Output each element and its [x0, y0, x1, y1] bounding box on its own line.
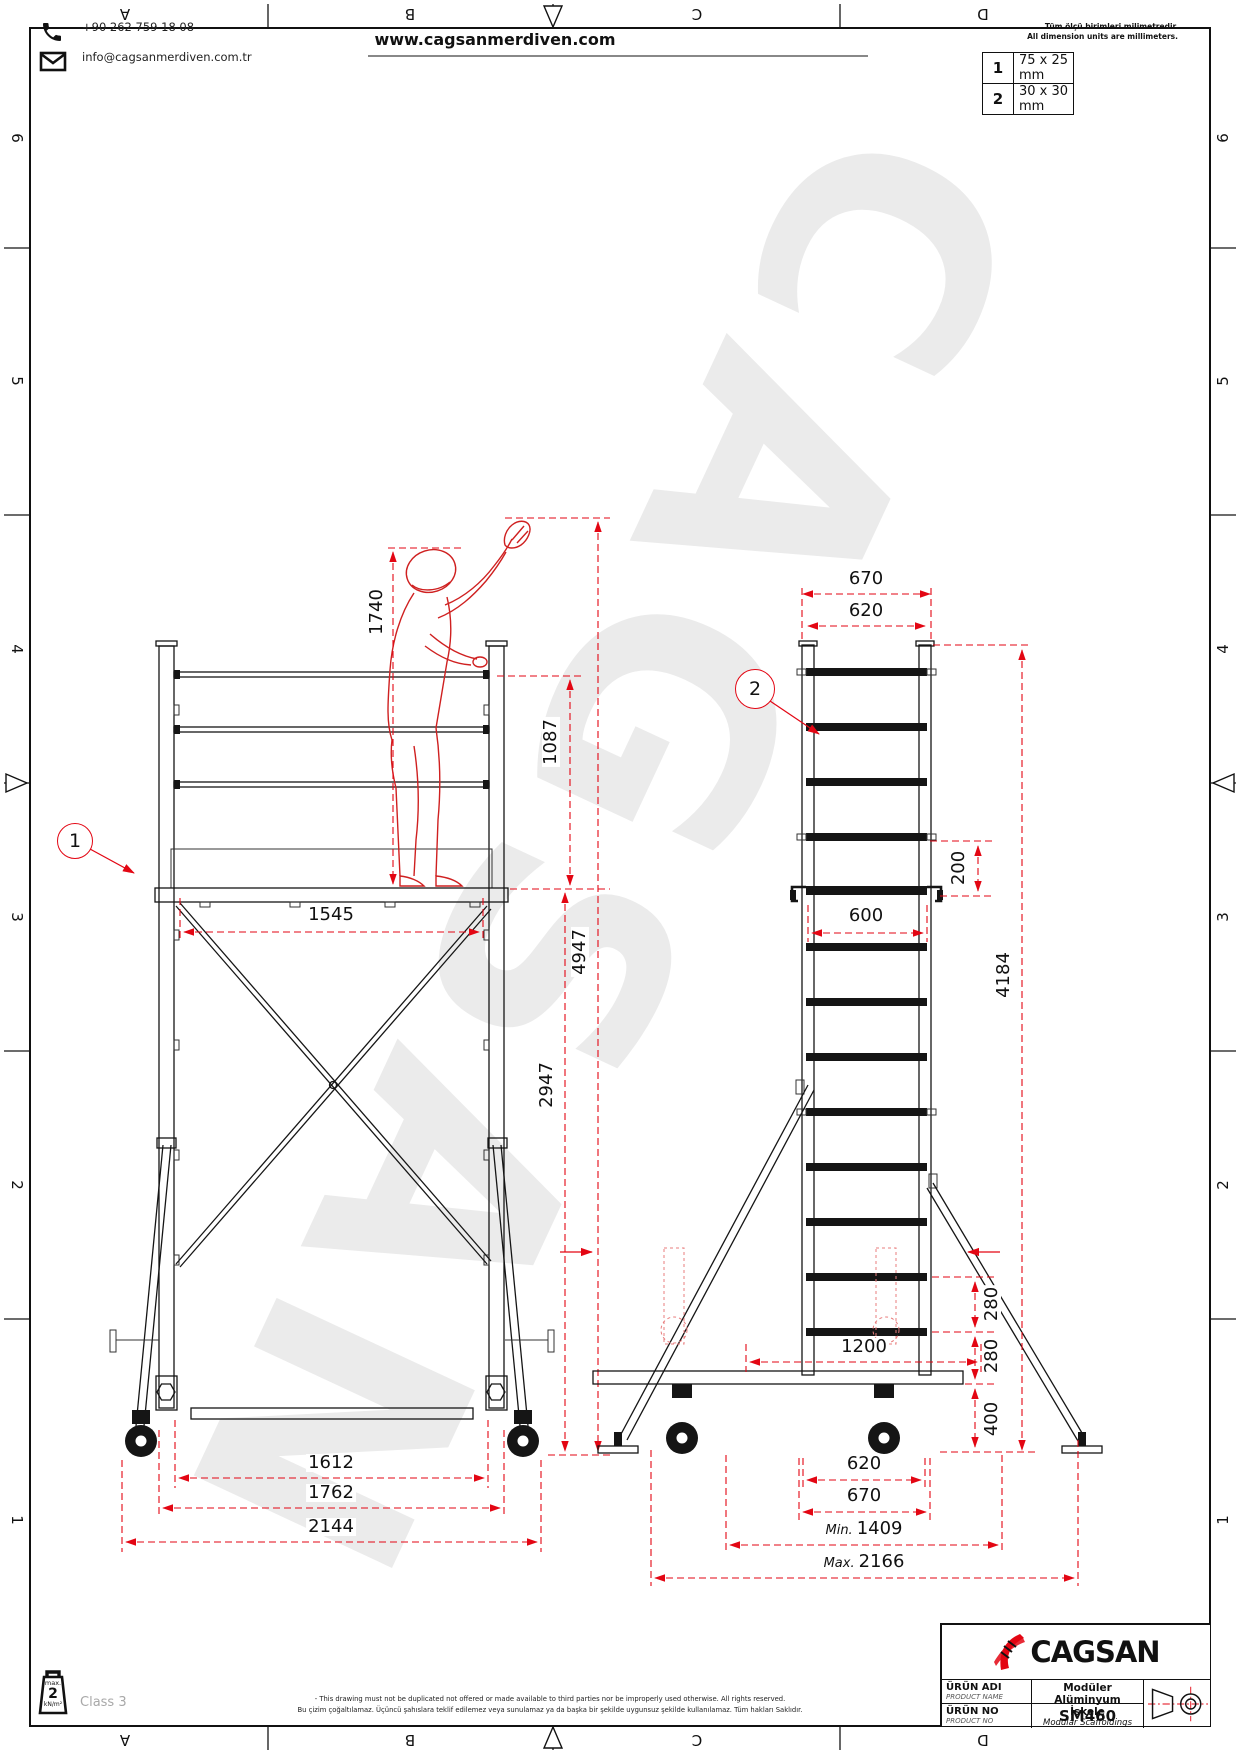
dim-guardrail-height: 1087 [542, 717, 560, 767]
dim-frame-width-inner: 620 [847, 602, 885, 620]
disclaimer: - This drawing must not be duplicated no… [240, 1694, 860, 1716]
frame-col-bottom-a: A [120, 1731, 130, 1749]
frame-row-right-2: 2 [1214, 1180, 1232, 1190]
load-class-row: max. 2 kN/m² Class 3 [36, 1668, 127, 1716]
email-row: info@cagsanmerdiven.com.tr [40, 50, 252, 64]
phone-number: +90 262 759 18 08 [82, 20, 194, 34]
dim-bottom-width-outer: 670 [845, 1487, 883, 1505]
frame-row-left-1: 1 [8, 1515, 26, 1525]
dim-rung-to-platform: 200 [950, 849, 968, 887]
product-no-cell: SM460 [1032, 1704, 1144, 1728]
max-load-value: 2 [36, 1687, 70, 1701]
dim-total-height: 4947 [571, 927, 589, 977]
projection-symbol-cell [1144, 1680, 1212, 1728]
frame-col-bottom-c: C [692, 1731, 702, 1749]
product-name-label-cell: ÜRÜN ADI PRODUCT NAME [942, 1680, 1032, 1704]
table-row: 1 75 x 25 mm [983, 53, 1074, 84]
dim-frame-width-outer: 670 [847, 570, 885, 588]
drawing-sheet: CAGSAN [0, 0, 1240, 1754]
product-number: SM460 [1036, 1706, 1139, 1726]
dim-rung-pitch-lower: 280 [983, 1337, 1001, 1375]
units-note-tr: Tüm ölçü birimleri milimetredir. [1027, 22, 1178, 32]
brand-name: CAGSAN [1030, 1635, 1159, 1669]
product-name-cell: Modüler Alüminyum İskele Modular Scaffol… [1032, 1680, 1144, 1704]
dim-clear-width: 600 [847, 907, 885, 925]
disclaimer-tr: Bu çizim çoğaltılamaz. Üçüncü şahıslara … [240, 1705, 860, 1716]
frame-col-top-b: B [405, 5, 415, 23]
brand-logo: CAGSAN [942, 1625, 1210, 1680]
profile-2-id: 2 [983, 84, 1014, 115]
dim-base-width: 1200 [839, 1338, 889, 1356]
callout-balloon-1: 1 [57, 823, 93, 859]
dim-platform-width: 1545 [306, 906, 356, 924]
phone-row: +90 262 759 18 08 [40, 20, 194, 34]
frame-row-right-4: 4 [1214, 644, 1232, 654]
profile-size-table: 1 75 x 25 mm 2 30 x 30 mm [982, 52, 1074, 115]
frame-row-left-3: 3 [8, 912, 26, 922]
projection-symbol-icon [1148, 1682, 1208, 1726]
dim-min-prefix: Min. [825, 1523, 852, 1538]
frame-col-bottom-d: D [977, 1731, 989, 1749]
frame-col-bottom-b: B [405, 1731, 415, 1749]
brand-ribbon-icon [992, 1632, 1026, 1672]
frame-row-right-5: 5 [1214, 376, 1232, 386]
dim-base-width-inner: 1612 [306, 1454, 356, 1472]
frame-row-left-2: 2 [8, 1180, 26, 1190]
callout-balloon-2: 2 [735, 669, 775, 709]
dim-base-width-outer: 2144 [306, 1518, 356, 1536]
dim-max-prefix: Max. [824, 1556, 855, 1571]
frame-col-top-c: C [692, 5, 702, 23]
product-no-label-cell: ÜRÜN NO PRODUCT NO [942, 1704, 1032, 1728]
frame-col-top-d: D [977, 5, 989, 23]
frame-row-left-6: 6 [8, 133, 26, 143]
dim-max-spread: Max.2166 [822, 1553, 907, 1571]
max-load-weight-icon: max. 2 kN/m² [36, 1668, 70, 1716]
dim-frame-height: 4184 [995, 950, 1013, 1000]
max-load-unit: kN/m² [36, 1702, 70, 1708]
profile-1-size: 75 x 25 mm [1014, 53, 1074, 84]
dim-rung-pitch-upper: 280 [983, 1285, 1001, 1323]
disclaimer-en: - This drawing must not be duplicated no… [240, 1694, 860, 1705]
dim-worker-height: 1740 [368, 587, 386, 637]
units-note-en: All dimension units are millimeters. [1027, 32, 1178, 42]
dim-min-spread: Min.1409 [823, 1520, 904, 1538]
frame-row-left-4: 4 [8, 644, 26, 654]
class-label: Class 3 [80, 1695, 127, 1716]
dim-platform-height: 2947 [538, 1060, 556, 1110]
title-block: CAGSAN ÜRÜN ADI PRODUCT NAME Modüler Alü… [940, 1623, 1210, 1726]
watermark-text: CAGSAN [106, 77, 1084, 1644]
profile-1-id: 1 [983, 53, 1014, 84]
frame-row-right-6: 6 [1214, 133, 1232, 143]
frame-row-right-3: 3 [1214, 912, 1232, 922]
table-row: 2 30 x 30 mm [983, 84, 1074, 115]
units-note: Tüm ölçü birimleri milimetredir. All dim… [1027, 22, 1178, 42]
email-address: info@cagsanmerdiven.com.tr [82, 50, 252, 64]
frame-row-left-5: 5 [8, 376, 26, 386]
profile-2-size: 30 x 30 mm [1014, 84, 1074, 115]
dim-base-width-mid: 1762 [306, 1484, 356, 1502]
dim-base-height: 400 [983, 1400, 1001, 1438]
dim-bottom-width-inner: 620 [845, 1455, 883, 1473]
frame-row-right-1: 1 [1214, 1515, 1232, 1525]
website-url: www.cagsanmerdiven.com [345, 30, 645, 49]
